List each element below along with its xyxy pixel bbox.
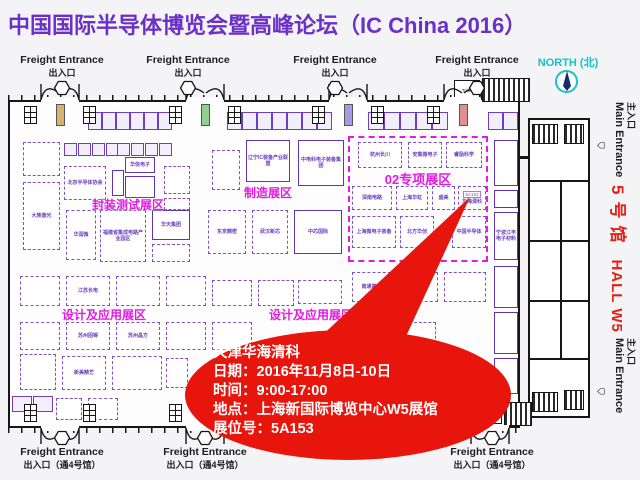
booth (20, 354, 56, 390)
booth (404, 272, 438, 302)
freight-entrance-zh: 出入口 (435, 66, 518, 79)
booth (287, 112, 302, 130)
booth (272, 112, 287, 130)
booth (112, 170, 124, 196)
booth (503, 112, 518, 130)
freight-entrance-zh: 出入口 (146, 66, 229, 79)
booth (212, 280, 252, 306)
booth-label: 江苏长电 (77, 288, 99, 294)
callout-text: 天津华海清科 日期：2016年11月8日-10日 时间：9:00-17:00 地… (213, 344, 438, 439)
door-hex-icon (55, 432, 70, 445)
booth (494, 140, 518, 186)
freight-entrance-en: Freight Entrance (20, 54, 103, 66)
booth-江苏长电: 江苏长电 (66, 276, 110, 306)
booth-辽宁IC装备产业联盟: 辽宁IC装备产业联盟 (246, 140, 290, 182)
main-entrance-top-label: 主入口 Main Entrance (612, 102, 636, 177)
connector-wall (520, 156, 529, 159)
booth-武汉新芯: 武汉新芯 (252, 210, 288, 254)
side-corridor-building (528, 118, 590, 418)
freight-entrance-en: Freight Entrance (20, 446, 103, 458)
zone-label-制造展区: 制造展区 (244, 184, 292, 201)
stairs-icon (482, 78, 530, 102)
booth (117, 143, 130, 156)
booth-label: 华信电子 (129, 162, 151, 168)
booth (152, 244, 190, 262)
booth-label: 福建省集成电路产业园区 (101, 230, 145, 242)
booth (20, 322, 60, 350)
booth-中电科电子装备集团: 中电科电子装备集团 (298, 140, 344, 186)
entrance-arrow-icon: ⌂ (592, 388, 607, 396)
booth (488, 112, 503, 130)
booth-label: 南通富士通 (360, 284, 387, 290)
entrance-arrow-icon: ⌂ (592, 142, 607, 150)
booth (494, 190, 518, 208)
elevator-block (344, 104, 353, 126)
booth (64, 143, 77, 156)
freight-entrance-bottom-1: Freight Entrance 出入口（通4号馆） (20, 446, 103, 471)
booth-label: 苏州固锝 (77, 333, 99, 339)
freight-entrance-zh: 出入口（通4号馆） (20, 458, 103, 471)
booth (242, 112, 257, 130)
hall-number: 5号馆 (608, 185, 627, 249)
booth-label: 北京半导体协会 (66, 180, 103, 186)
freight-entrance-top-4: Freight Entrance 出入口 (435, 54, 518, 79)
booth-北京半导体协会: 北京半导体协会 (64, 166, 106, 200)
stairs-icon (564, 124, 584, 144)
zone-label-设计及应用展区: 设计及应用展区 (269, 306, 353, 323)
freight-entrance-top-3: Freight Entrance 出入口 (293, 54, 376, 79)
main-entrance-zh: 主入口 (625, 102, 636, 177)
door-hex-icon (198, 432, 213, 445)
booth (116, 276, 160, 306)
booth-label: 东京精密 (216, 229, 238, 235)
booth (130, 112, 144, 130)
booth-华润微: 华润微 (66, 210, 96, 260)
stairs-icon (532, 392, 558, 412)
booth (78, 143, 91, 156)
booth-label: 新美精艺 (73, 370, 95, 376)
corridor-wall (560, 180, 562, 358)
stairs-icon (532, 124, 558, 144)
booth-苏州固锝: 苏州固锝 (66, 322, 110, 350)
main-entrance-zh: 主入口 (625, 338, 636, 413)
booth (20, 276, 60, 306)
booth (164, 198, 190, 210)
exhibitor-name: 天津华海清科 (213, 344, 438, 363)
hall-w5-label: 5号馆HALL W5 (607, 185, 632, 333)
booth (427, 106, 440, 124)
booth (56, 398, 82, 420)
booth (112, 356, 162, 390)
booth-label: 宁波江丰电子材料 (495, 230, 517, 242)
booth (166, 276, 206, 306)
exhibit-date: 日期：2016年11月8日-10日 (213, 363, 438, 382)
freight-entrance-en: Freight Entrance (146, 54, 229, 66)
booth-华信电子: 华信电子 (125, 157, 155, 173)
door-hex-icon (181, 82, 196, 95)
booth (24, 106, 37, 124)
booth-新美精艺: 新美精艺 (62, 356, 106, 390)
booth-number: 展位号：5A153 (213, 420, 438, 439)
booth (212, 150, 240, 190)
booth (228, 106, 241, 124)
booth (144, 112, 158, 130)
north-label: NORTH (北) (538, 54, 599, 70)
booth (159, 143, 172, 156)
booth (92, 143, 105, 156)
freight-entrance-top-1: Freight Entrance 出入口 (20, 54, 103, 79)
booth-东京精密: 东京精密 (208, 210, 246, 254)
booth (371, 106, 384, 124)
booth-宁波江丰电子材料: 宁波江丰电子材料 (494, 212, 518, 260)
freight-entrance-en: Freight Entrance (293, 54, 376, 66)
booth (258, 280, 294, 306)
freight-entrance-zh: 出入口（通4号馆） (450, 458, 533, 471)
elevator-block (56, 104, 65, 126)
booth-label: 中电科电子装备集团 (299, 157, 343, 169)
page-title: 中国国际半导体博览会暨高峰论坛（IC China 2016） (8, 8, 526, 40)
booth-中芯国际: 中芯国际 (294, 210, 342, 254)
exhibit-venue: 地点：上海新国际博览中心W5展馆 (213, 401, 438, 420)
booth (444, 272, 486, 302)
freight-entrance-en: Freight Entrance (163, 446, 246, 458)
freight-entrance-en: Freight Entrance (435, 54, 518, 66)
booth (83, 404, 96, 422)
floor-plan-page: 中国国际半导体博览会暨高峰论坛（IC China 2016） 大族激光北京半导体… (0, 0, 640, 480)
corridor-wall (528, 240, 590, 242)
main-entrance-en: Main Entrance (612, 102, 625, 177)
booth-label: 辽宁IC装备产业联盟 (247, 155, 289, 167)
zone-label-封装测试展区: 封装测试展区 (92, 196, 164, 213)
booth (257, 112, 272, 130)
elevator-block (201, 104, 210, 126)
booth (298, 280, 342, 304)
hall-code: HALL W5 (608, 259, 625, 332)
booth (125, 176, 155, 198)
booth (83, 106, 96, 124)
booth (494, 312, 518, 354)
booth (145, 143, 158, 156)
main-entrance-en: Main Entrance (612, 338, 625, 413)
booth-大族激光: 大族激光 (23, 182, 60, 250)
booth (384, 112, 400, 130)
freight-entrance-zh: 出入口 (20, 66, 103, 79)
toilet-room: Toilet (454, 80, 480, 100)
booth (116, 112, 130, 130)
booth-label: 苏州晶方 (127, 333, 149, 339)
booth (169, 404, 182, 422)
elevator-block (459, 104, 468, 126)
booth-福建省集成电路产业园区: 福建省集成电路产业园区 (100, 210, 146, 262)
main-entrance-bottom-label: 主入口 Main Entrance (612, 338, 636, 413)
freight-entrance-zh: 出入口（通4号馆） (163, 458, 246, 471)
corridor-wall (528, 300, 590, 302)
booth (312, 106, 325, 124)
booth (166, 358, 188, 388)
freight-entrance-bottom-2: Freight Entrance 出入口（通4号馆） (163, 446, 246, 471)
compass-icon (555, 70, 578, 93)
zone-label-设计及应用展区: 设计及应用展区 (62, 306, 146, 323)
stairs-icon (564, 390, 584, 410)
booth (400, 112, 416, 130)
booth (102, 112, 116, 130)
corridor-wall (528, 358, 590, 360)
booth (24, 404, 37, 422)
freight-entrance-zh: 出入口 (293, 66, 376, 79)
zone-label-02专项展区: 02专项展区 (385, 169, 451, 188)
freight-entrance-bottom-3: Freight Entrance 出入口（通4号馆） (450, 446, 533, 471)
booth-label: 中芯国际 (307, 229, 329, 235)
zone-02-boundary (348, 136, 488, 262)
booth (164, 166, 190, 194)
booth (169, 106, 182, 124)
booth-苏州晶方: 苏州晶方 (116, 322, 160, 350)
booth-label: 华润微 (72, 232, 89, 238)
booth-label: 华天集团 (160, 222, 182, 228)
booth-label: 大族激光 (30, 213, 52, 219)
booth (166, 322, 206, 350)
exhibit-time: 时间：9:00-17:00 (213, 382, 438, 401)
booth-南通富士通: 南通富士通 (352, 272, 396, 302)
corridor-wall (528, 180, 590, 182)
freight-entrance-top-2: Freight Entrance 出入口 (146, 54, 229, 79)
booth (23, 142, 60, 176)
door-hex-icon (485, 432, 500, 445)
booth (494, 266, 518, 308)
door-hex-icon (55, 82, 70, 95)
booth-label: 武汉新芯 (259, 229, 281, 235)
booth (131, 143, 144, 156)
booth-华天集团: 华天集团 (152, 210, 190, 240)
door-hex-icon (328, 82, 343, 95)
freight-entrance-en: Freight Entrance (450, 446, 533, 458)
